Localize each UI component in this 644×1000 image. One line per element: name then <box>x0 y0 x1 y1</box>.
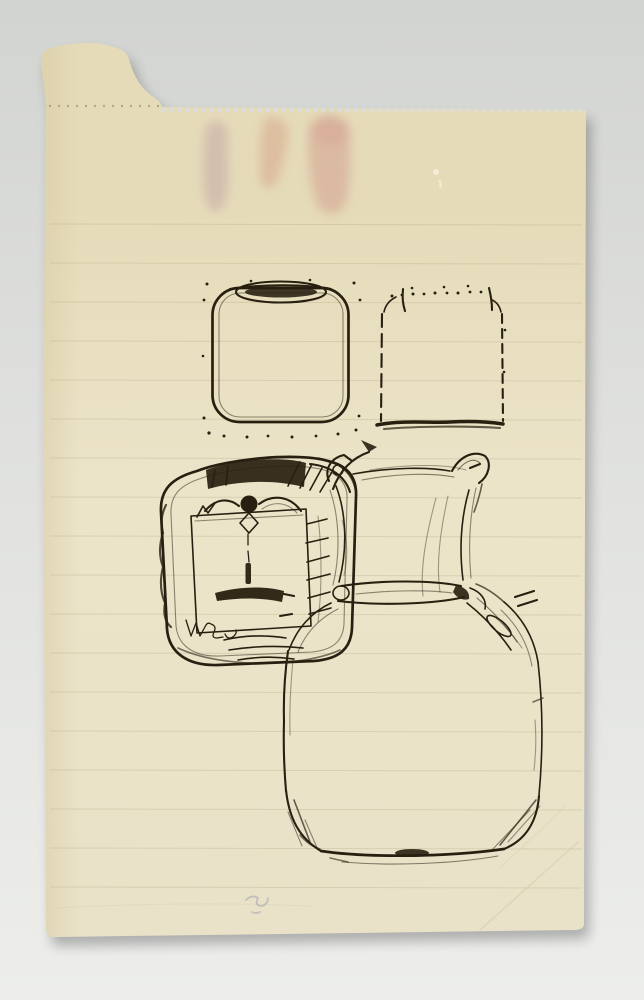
artwork-canvas <box>0 0 644 1000</box>
mauve-stain <box>203 121 229 212</box>
photograph-of-ink-sketch-sheet <box>0 0 644 1000</box>
jar1-lid-ink-fill <box>245 287 317 298</box>
tin-head-knob <box>241 496 258 513</box>
pink-stain-dark-head <box>313 118 349 146</box>
bigjar-base-blotch <box>395 849 429 857</box>
tin-drip-bar <box>246 563 252 584</box>
jar2-right-side <box>502 314 503 421</box>
